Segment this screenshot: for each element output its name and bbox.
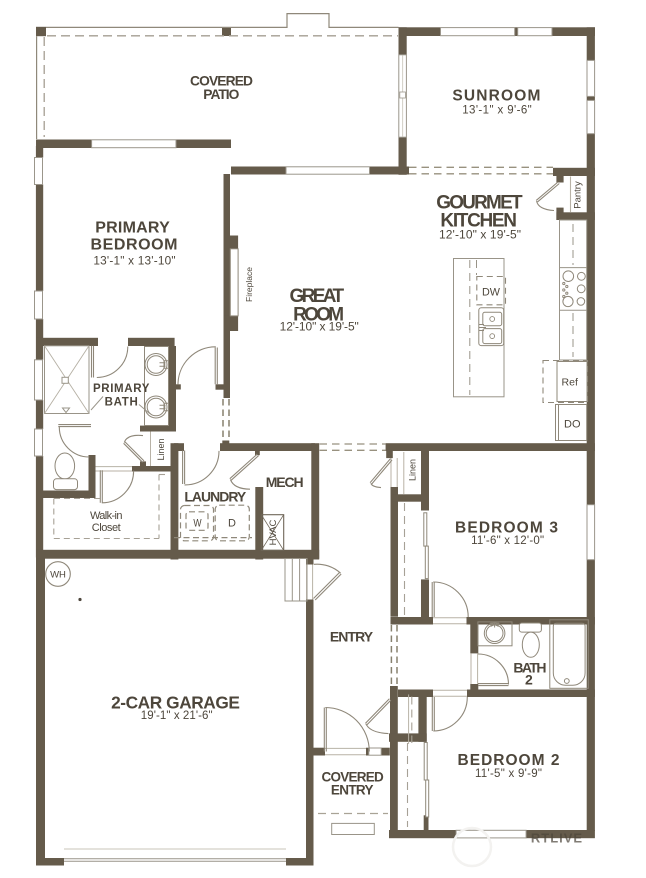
svg-text:Closet: Closet <box>92 522 121 534</box>
svg-text:11'-5" x 9'-9": 11'-5" x 9'-9" <box>475 768 542 780</box>
svg-text:Fireplace: Fireplace <box>244 267 254 302</box>
svg-text:HVAC: HVAC <box>268 520 279 546</box>
svg-text:12'-10" x 19'-5": 12'-10" x 19'-5" <box>439 227 521 241</box>
svg-text:BEDROOM 2: BEDROOM 2 <box>458 752 560 769</box>
svg-text:12'-10" x 19'-5": 12'-10" x 19'-5" <box>280 319 359 333</box>
svg-text:W: W <box>193 518 202 530</box>
svg-text:MECH: MECH <box>266 474 304 490</box>
svg-text:PRIMARY: PRIMARY <box>93 383 150 395</box>
svg-text:DW: DW <box>482 286 501 298</box>
svg-text:ENTRY: ENTRY <box>331 783 374 798</box>
svg-text:LAUNDRY: LAUNDRY <box>184 489 247 505</box>
svg-text:Ref: Ref <box>562 377 578 389</box>
svg-text:RTLIVE: RTLIVE <box>531 831 583 846</box>
svg-text:ENTRY: ENTRY <box>330 628 374 644</box>
svg-text:19'-1" x 21'-6": 19'-1" x 21'-6" <box>141 710 213 722</box>
svg-text:SUNROOM: SUNROOM <box>452 87 540 104</box>
svg-text:Linen: Linen <box>408 459 418 481</box>
svg-text:DO: DO <box>564 419 581 431</box>
svg-text:BEDROOM: BEDROOM <box>91 237 178 254</box>
svg-text:BATH: BATH <box>105 397 138 409</box>
svg-text:11'-6" x 12'-0": 11'-6" x 12'-0" <box>471 535 544 547</box>
svg-text:PRIMARY: PRIMARY <box>95 219 170 236</box>
svg-text:13'-1" x 13'-10": 13'-1" x 13'-10" <box>93 254 175 268</box>
svg-text:13'-1" x 9'-6": 13'-1" x 9'-6" <box>462 104 532 116</box>
svg-text:Pantry: Pantry <box>573 181 584 209</box>
svg-text:WH: WH <box>50 570 66 581</box>
svg-text:D: D <box>228 518 236 530</box>
svg-text:2: 2 <box>525 672 533 688</box>
svg-text:Walk-in: Walk-in <box>90 510 123 522</box>
svg-text:Linen: Linen <box>156 438 166 460</box>
svg-text:PATIO: PATIO <box>203 87 239 102</box>
